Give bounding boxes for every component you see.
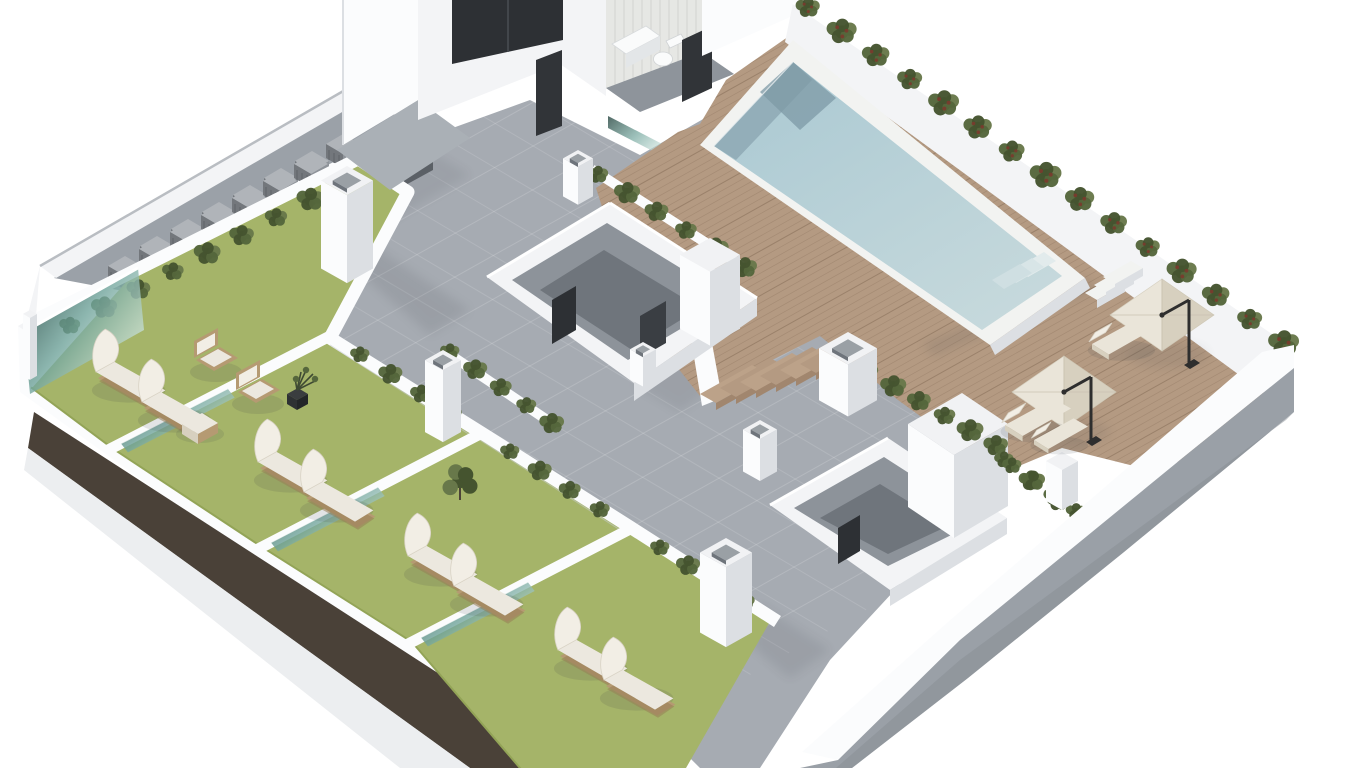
rooftop-render: Isometric 3D render of a rooftop terrace…	[0, 0, 1366, 768]
chimney-lawn-wall	[425, 350, 461, 442]
chimney-main	[321, 166, 373, 283]
chimney-deck	[819, 332, 877, 416]
balustrade-post	[23, 310, 37, 380]
patio1-corner-pillar	[680, 238, 740, 346]
isometric-rooftop-scene	[0, 0, 1366, 768]
patio1-vent	[563, 150, 593, 205]
corner-parapet-step	[1046, 452, 1078, 510]
patio1-small-vent	[630, 342, 656, 387]
corner-garden	[1002, 452, 1086, 519]
chimney-south	[700, 538, 752, 647]
patio2-vent	[743, 420, 777, 481]
dark-door-panel	[536, 50, 562, 136]
